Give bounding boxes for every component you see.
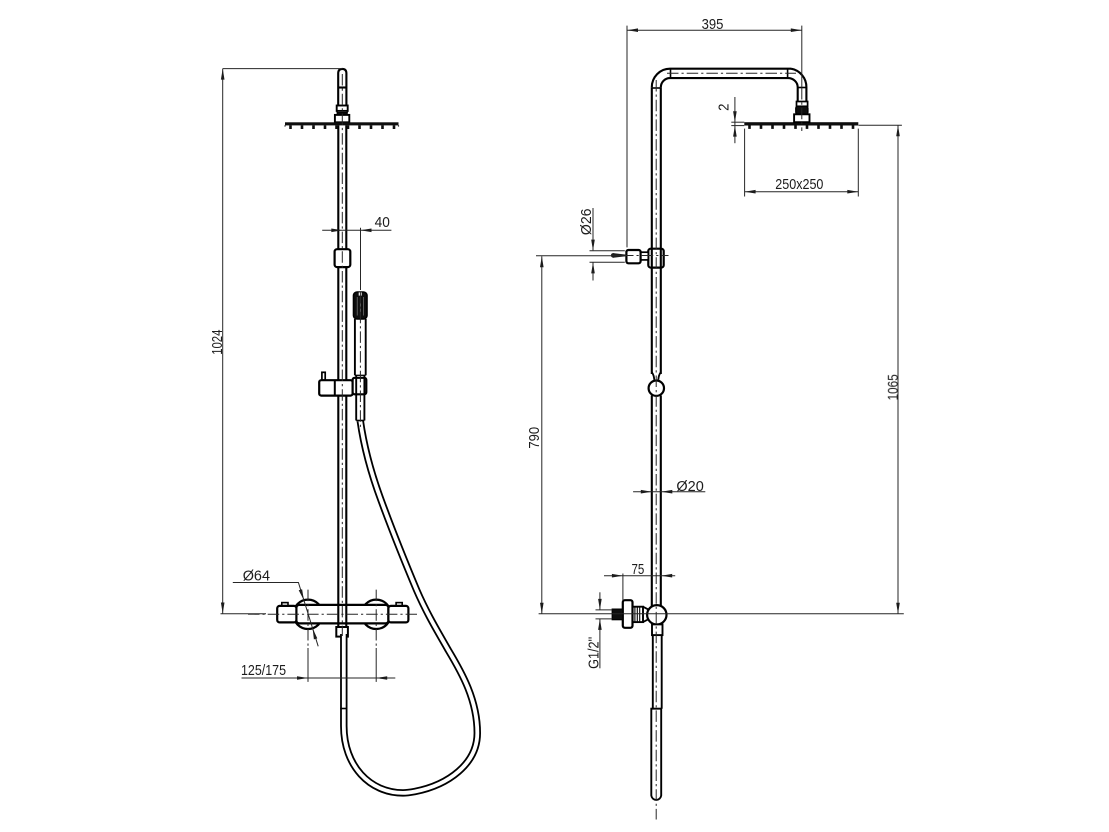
svg-text:1065: 1065 bbox=[886, 374, 902, 400]
svg-text:125/175: 125/175 bbox=[241, 663, 286, 679]
svg-text:75: 75 bbox=[632, 562, 645, 578]
svg-text:Ø26: Ø26 bbox=[579, 209, 595, 236]
svg-text:2: 2 bbox=[717, 104, 733, 111]
svg-text:790: 790 bbox=[527, 427, 543, 449]
svg-text:395: 395 bbox=[702, 17, 724, 33]
svg-text:Ø64: Ø64 bbox=[243, 569, 270, 585]
svg-text:250x250: 250x250 bbox=[775, 177, 823, 193]
svg-text:1024: 1024 bbox=[210, 330, 226, 355]
svg-text:40: 40 bbox=[375, 215, 390, 231]
svg-text:Ø20: Ø20 bbox=[676, 479, 703, 495]
svg-text:G1/2": G1/2" bbox=[587, 637, 603, 669]
